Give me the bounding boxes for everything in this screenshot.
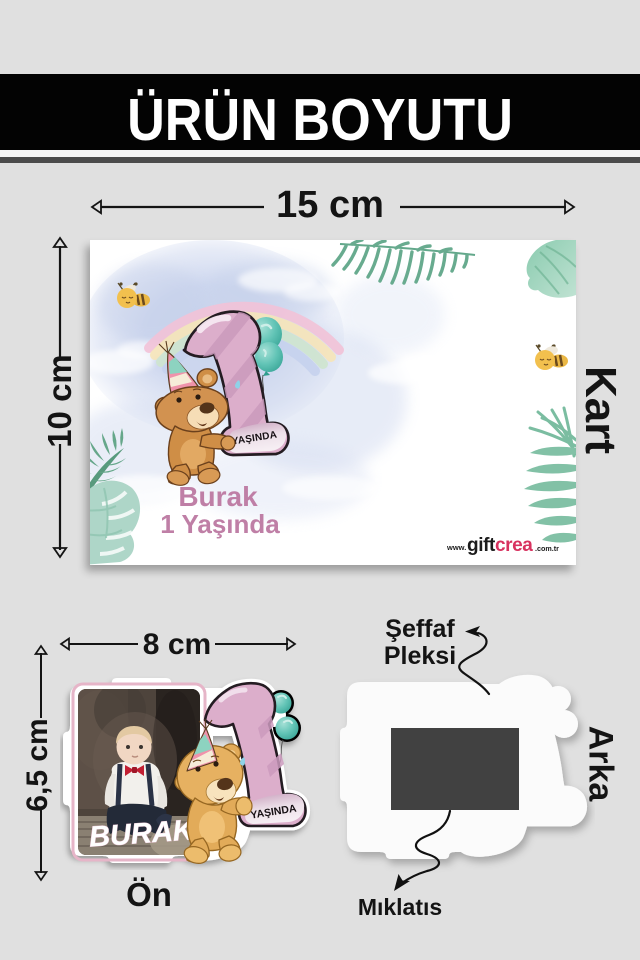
svg-text:.com.tr: .com.tr [535,544,559,553]
svg-text:giftcrea: giftcrea [467,535,533,556]
svg-text:1 Yaşında: 1 Yaşında [160,509,280,539]
svg-text:Burak: Burak [178,481,258,512]
svg-text:www.: www. [446,543,466,552]
